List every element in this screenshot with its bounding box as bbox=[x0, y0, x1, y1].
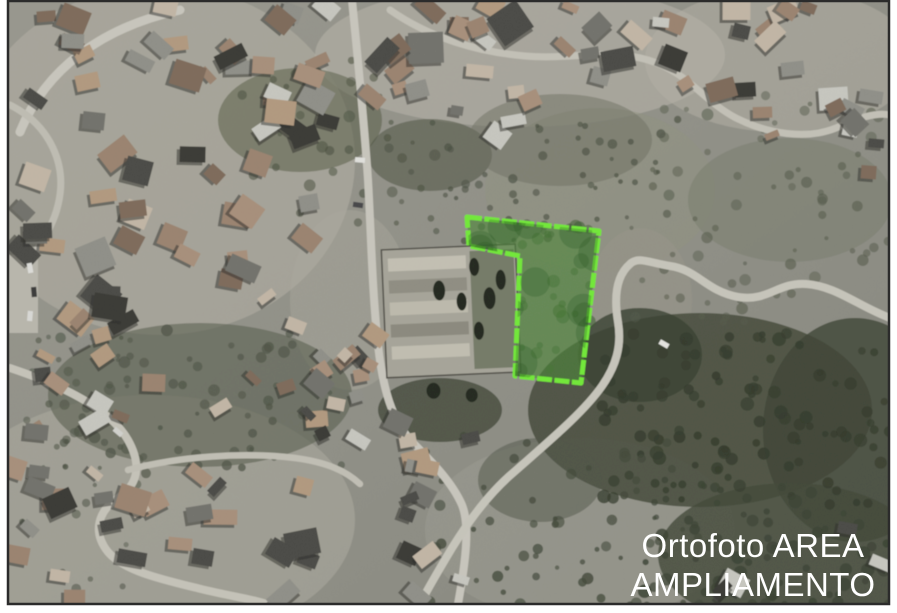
caption: Ortofoto AREA AMPLIAMENTO bbox=[623, 527, 883, 605]
orthophoto-scene bbox=[0, 0, 897, 613]
photo-content bbox=[0, 0, 897, 613]
caption-line2: AMPLIAMENTO bbox=[623, 566, 883, 605]
photo-grain bbox=[0, 0, 897, 613]
caption-line1: Ortofoto AREA bbox=[623, 527, 883, 566]
orthophoto-page: Ortofoto AREA AMPLIAMENTO bbox=[0, 0, 897, 613]
